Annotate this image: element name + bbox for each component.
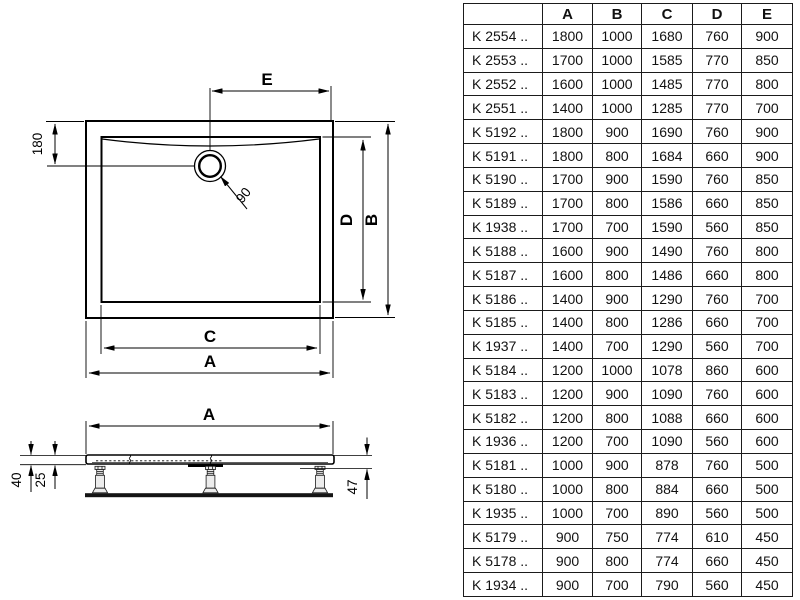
model-cell: K 1937 ..	[464, 334, 543, 358]
value-cell: 660	[693, 406, 742, 430]
model-cell: K 1936 ..	[464, 430, 543, 454]
value-cell: 800	[742, 72, 793, 96]
value-cell: 1590	[642, 167, 693, 191]
value-cell: 1200	[543, 430, 593, 454]
value-cell: 1090	[642, 430, 693, 454]
technical-drawing: E 180 90 D	[0, 0, 465, 600]
value-cell: 900	[593, 453, 642, 477]
dimension-47: 47	[300, 438, 372, 500]
value-cell: 1000	[593, 25, 642, 49]
value-cell: 884	[642, 477, 693, 501]
model-cell: K 2553 ..	[464, 48, 543, 72]
dim-label-40: 40	[9, 472, 24, 487]
col-header-d: D	[693, 4, 742, 25]
model-cell: K 5187 ..	[464, 263, 543, 287]
value-cell: 1490	[642, 239, 693, 263]
value-cell: 1000	[543, 477, 593, 501]
table-row: K 5192 ..18009001690760900	[464, 120, 793, 144]
model-cell: K 5186 ..	[464, 287, 543, 311]
value-cell: 800	[742, 263, 793, 287]
value-cell: 900	[543, 549, 593, 573]
value-cell: 500	[742, 477, 793, 501]
value-cell: 1400	[543, 96, 593, 120]
table-row: K 5180 ..1000800884660500	[464, 477, 793, 501]
table-row: K 5191 ..18008001684660900	[464, 144, 793, 168]
value-cell: 1000	[593, 358, 642, 382]
value-cell: 900	[742, 25, 793, 49]
value-cell: 800	[593, 477, 642, 501]
value-cell: 770	[693, 48, 742, 72]
value-cell: 1200	[543, 382, 593, 406]
table-row: K 5190 ..17009001590760850	[464, 167, 793, 191]
value-cell: 774	[642, 549, 693, 573]
value-cell: 800	[593, 263, 642, 287]
drain-inner-circle	[199, 155, 221, 177]
model-cell: K 1934 ..	[464, 573, 543, 597]
value-cell: 1600	[543, 239, 593, 263]
value-cell: 760	[693, 287, 742, 311]
model-cell: K 5183 ..	[464, 382, 543, 406]
tray-slope-curve	[102, 139, 319, 146]
value-cell: 1000	[543, 453, 593, 477]
value-cell: 1000	[593, 72, 642, 96]
value-cell: 1200	[543, 358, 593, 382]
value-cell: 660	[693, 144, 742, 168]
value-cell: 1600	[543, 263, 593, 287]
dim-label-47: 47	[345, 479, 360, 494]
value-cell: 1800	[543, 144, 593, 168]
table-row: K 5185 ..14008001286660700	[464, 310, 793, 334]
value-cell: 1700	[543, 191, 593, 215]
header-row: ABCDE	[464, 4, 793, 25]
value-cell: 850	[742, 167, 793, 191]
value-cell: 900	[543, 573, 593, 597]
table-row: K 1936 ..12007001090560600	[464, 430, 793, 454]
table-row: K 5178 ..900800774660450	[464, 549, 793, 573]
table-row: K 5188 ..16009001490760800	[464, 239, 793, 263]
value-cell: 560	[693, 573, 742, 597]
spec-table: ABCDE K 2554 ..180010001680760900K 2553 …	[463, 3, 793, 597]
value-cell: 1078	[642, 358, 693, 382]
value-cell: 1485	[642, 72, 693, 96]
value-cell: 770	[693, 96, 742, 120]
model-cell: K 1935 ..	[464, 501, 543, 525]
value-cell: 760	[693, 382, 742, 406]
table-row: K 5184 ..120010001078860600	[464, 358, 793, 382]
model-cell: K 5185 ..	[464, 310, 543, 334]
value-cell: 560	[693, 430, 742, 454]
col-header-c: C	[642, 4, 693, 25]
dim-label-a-side: A	[203, 405, 215, 424]
table-row: K 5181 ..1000900878760500	[464, 453, 793, 477]
spec-table-body: K 2554 ..180010001680760900K 2553 ..1700…	[464, 25, 793, 597]
model-cell: K 5191 ..	[464, 144, 543, 168]
table-row: K 1935 ..1000700890560500	[464, 501, 793, 525]
table-row: K 5183 ..12009001090760600	[464, 382, 793, 406]
model-cell: K 5179 ..	[464, 525, 543, 549]
value-cell: 1200	[543, 406, 593, 430]
value-cell: 1090	[642, 382, 693, 406]
model-cell: K 5189 ..	[464, 191, 543, 215]
value-cell: 850	[742, 48, 793, 72]
value-cell: 860	[693, 358, 742, 382]
value-cell: 500	[742, 501, 793, 525]
model-cell: K 2554 ..	[464, 25, 543, 49]
table-row: K 5189 ..17008001586660850	[464, 191, 793, 215]
value-cell: 1000	[593, 96, 642, 120]
value-cell: 1290	[642, 287, 693, 311]
adjustable-feet	[92, 466, 327, 493]
value-cell: 1400	[543, 310, 593, 334]
dimension-40: 40	[9, 441, 31, 492]
value-cell: 1800	[543, 25, 593, 49]
value-cell: 500	[742, 453, 793, 477]
value-cell: 660	[693, 263, 742, 287]
table-row: K 2553 ..170010001585770850	[464, 48, 793, 72]
foot	[92, 466, 107, 493]
model-cell: K 5184 ..	[464, 358, 543, 382]
value-cell: 1690	[642, 120, 693, 144]
table-row: K 1937 ..14007001290560700	[464, 334, 793, 358]
dim-label-e: E	[261, 70, 272, 89]
value-cell: 700	[593, 215, 642, 239]
value-cell: 1590	[642, 215, 693, 239]
model-cell: K 1938 ..	[464, 215, 543, 239]
value-cell: 450	[742, 549, 793, 573]
value-cell: 1290	[642, 334, 693, 358]
value-cell: 1285	[642, 96, 693, 120]
value-cell: 760	[693, 25, 742, 49]
dimension-e: E	[212, 70, 331, 120]
value-cell: 1286	[642, 310, 693, 334]
value-cell: 1600	[543, 72, 593, 96]
dimension-180: 180	[30, 122, 84, 165]
value-cell: 750	[593, 525, 642, 549]
value-cell: 900	[593, 120, 642, 144]
value-cell: 610	[693, 525, 742, 549]
value-cell: 700	[593, 430, 642, 454]
value-cell: 900	[742, 120, 793, 144]
value-cell: 900	[593, 167, 642, 191]
value-cell: 1400	[543, 287, 593, 311]
dimension-a-side: A	[86, 405, 333, 454]
tray-inner-outline	[102, 137, 321, 302]
value-cell: 900	[593, 382, 642, 406]
dim-label-b: B	[362, 214, 381, 226]
value-cell: 450	[742, 573, 793, 597]
value-cell: 890	[642, 501, 693, 525]
dimension-c: C	[101, 305, 320, 354]
value-cell: 1586	[642, 191, 693, 215]
value-cell: 600	[742, 406, 793, 430]
table-row: K 5186 ..14009001290760700	[464, 287, 793, 311]
model-cell: K 5178 ..	[464, 549, 543, 573]
value-cell: 1700	[543, 215, 593, 239]
table-row: K 1934 ..900700790560450	[464, 573, 793, 597]
value-cell: 850	[742, 215, 793, 239]
value-cell: 600	[742, 358, 793, 382]
value-cell: 1585	[642, 48, 693, 72]
value-cell: 1400	[543, 334, 593, 358]
value-cell: 790	[642, 573, 693, 597]
value-cell: 1088	[642, 406, 693, 430]
table-row: K 2554 ..180010001680760900	[464, 25, 793, 49]
value-cell: 560	[693, 215, 742, 239]
value-cell: 900	[742, 144, 793, 168]
dim-label-25: 25	[33, 472, 48, 487]
model-cell: K 2551 ..	[464, 96, 543, 120]
value-cell: 1000	[543, 501, 593, 525]
value-cell: 800	[593, 144, 642, 168]
value-cell: 600	[742, 430, 793, 454]
value-cell: 700	[742, 310, 793, 334]
foot	[312, 466, 327, 493]
model-cell: K 5188 ..	[464, 239, 543, 263]
dim-label-d: D	[337, 214, 356, 226]
value-cell: 1486	[642, 263, 693, 287]
base-plate	[85, 493, 333, 497]
value-cell: 900	[593, 239, 642, 263]
value-cell: 700	[742, 287, 793, 311]
value-cell: 700	[742, 334, 793, 358]
value-cell: 800	[593, 310, 642, 334]
value-cell: 850	[742, 191, 793, 215]
model-cell: K 5182 ..	[464, 406, 543, 430]
model-cell: K 5192 ..	[464, 120, 543, 144]
shower-tray-spec-sheet: E 180 90 D	[0, 0, 800, 600]
value-cell: 1800	[543, 120, 593, 144]
value-cell: 660	[693, 310, 742, 334]
value-cell: 700	[593, 573, 642, 597]
table-row: K 5179 ..900750774610450	[464, 525, 793, 549]
value-cell: 560	[693, 334, 742, 358]
value-cell: 1700	[543, 167, 593, 191]
value-cell: 700	[593, 334, 642, 358]
dim-label-90: 90	[233, 185, 254, 206]
value-cell: 900	[543, 525, 593, 549]
table-row: K 2552 ..160010001485770800	[464, 72, 793, 96]
value-cell: 660	[693, 191, 742, 215]
value-cell: 760	[693, 239, 742, 263]
table-row: K 5187 ..16008001486660800	[464, 263, 793, 287]
dim-label-c: C	[204, 327, 216, 346]
value-cell: 770	[693, 72, 742, 96]
value-cell: 760	[693, 167, 742, 191]
foot	[203, 466, 218, 493]
value-cell: 760	[693, 453, 742, 477]
side-view: A	[9, 405, 372, 499]
dim-label-a-top: A	[204, 352, 216, 371]
value-cell: 878	[642, 453, 693, 477]
value-cell: 1000	[593, 48, 642, 72]
value-cell: 660	[693, 477, 742, 501]
model-cell: K 2552 ..	[464, 72, 543, 96]
dim-label-180: 180	[30, 133, 45, 156]
value-cell: 900	[593, 287, 642, 311]
model-cell: K 5181 ..	[464, 453, 543, 477]
model-cell: K 5180 ..	[464, 477, 543, 501]
value-cell: 700	[742, 96, 793, 120]
value-cell: 1700	[543, 48, 593, 72]
top-view: E 180 90 D	[30, 70, 395, 378]
value-cell: 800	[742, 239, 793, 263]
table-row: K 1938 ..17007001590560850	[464, 215, 793, 239]
value-cell: 660	[693, 549, 742, 573]
col-header-b: B	[593, 4, 642, 25]
value-cell: 800	[593, 191, 642, 215]
col-header-a: A	[543, 4, 593, 25]
value-cell: 560	[693, 501, 742, 525]
col-header-e: E	[742, 4, 793, 25]
table-row: K 2551 ..140010001285770700	[464, 96, 793, 120]
model-header	[464, 4, 543, 25]
value-cell: 800	[593, 406, 642, 430]
table-row: K 5182 ..12008001088660600	[464, 406, 793, 430]
dimension-90: 90	[221, 177, 254, 210]
model-cell: K 5190 ..	[464, 167, 543, 191]
value-cell: 774	[642, 525, 693, 549]
value-cell: 450	[742, 525, 793, 549]
value-cell: 600	[742, 382, 793, 406]
value-cell: 1680	[642, 25, 693, 49]
value-cell: 700	[593, 501, 642, 525]
value-cell: 760	[693, 120, 742, 144]
value-cell: 1684	[642, 144, 693, 168]
value-cell: 800	[593, 549, 642, 573]
